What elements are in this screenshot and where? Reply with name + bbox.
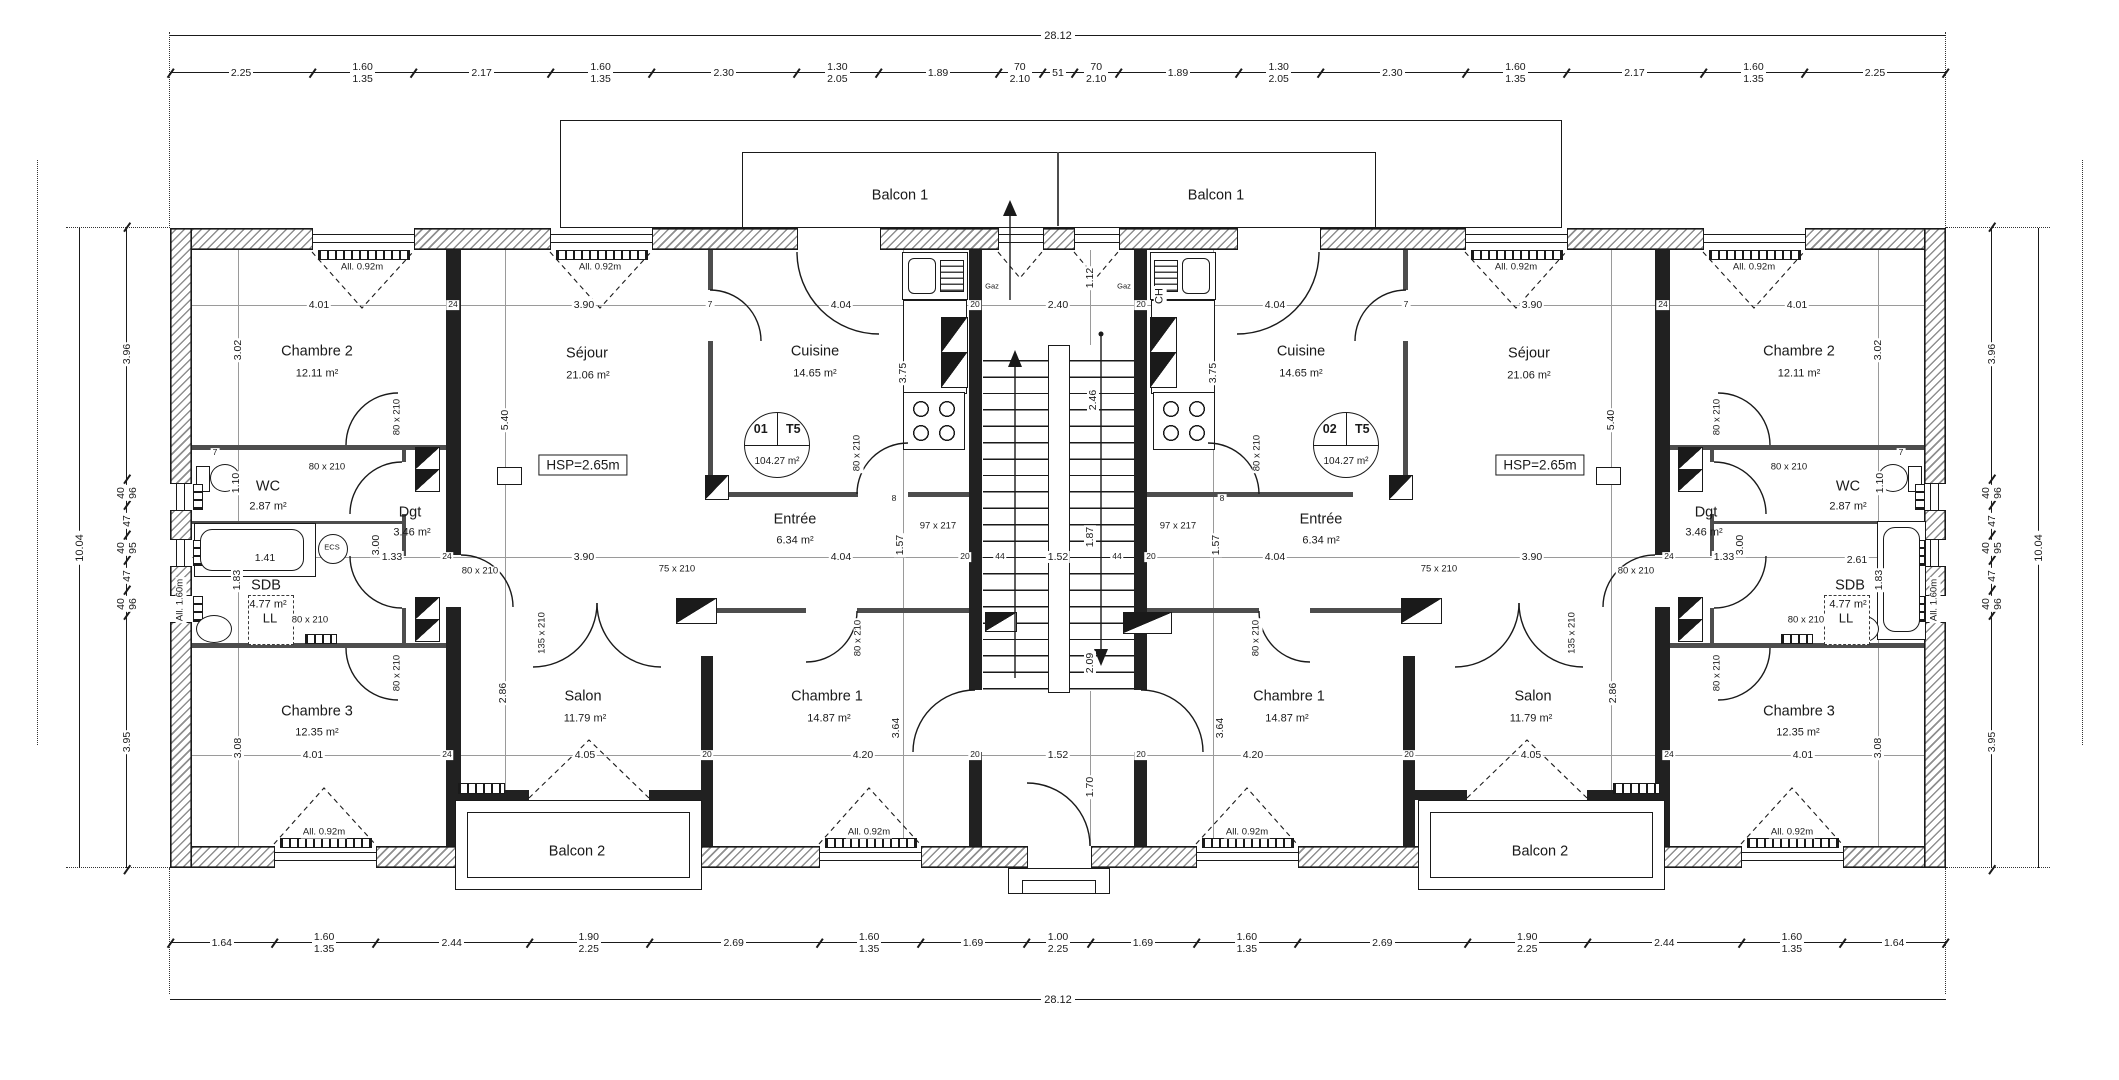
door-size: 80 x 210 bbox=[854, 618, 865, 658]
room-area: 12.35 m² bbox=[1776, 727, 1819, 740]
dim-segment: 1.002.25 bbox=[1026, 926, 1089, 960]
left-total-value: 10.04 bbox=[74, 531, 86, 565]
dim: 4.04 bbox=[1263, 299, 1287, 311]
dim: 3.75 bbox=[1207, 361, 1219, 385]
dim: 24 bbox=[1662, 552, 1675, 562]
sill-height-label: All. 0.92m bbox=[846, 828, 892, 839]
ceiling-height-right: HSP=2.65m bbox=[1495, 455, 1584, 476]
dim: 8 bbox=[1218, 494, 1227, 504]
dim: 3.64 bbox=[890, 716, 902, 740]
dim: 4.04 bbox=[829, 551, 853, 563]
room-sdb-left: SDB bbox=[251, 578, 281, 595]
balcony1-left-label: Balcon 1 bbox=[872, 188, 928, 205]
ceiling-height-left: HSP=2.65m bbox=[538, 455, 627, 476]
dim: 3.64 bbox=[1214, 716, 1226, 740]
door-size: 97 x 217 bbox=[1158, 522, 1198, 533]
sill-height-label: All. 1.60m bbox=[1930, 577, 1941, 623]
dim-segment: 1.69 bbox=[920, 926, 1027, 960]
room-cuisine-left: Cuisine bbox=[791, 344, 839, 361]
room-chambre1-left: Chambre 1 bbox=[791, 689, 863, 706]
dim-segment: 1.601.35 bbox=[1703, 56, 1804, 90]
dim: 7 bbox=[1402, 300, 1411, 310]
door-size: 80 x 210 bbox=[1253, 433, 1264, 473]
dim: 20 bbox=[1134, 750, 1147, 760]
dim: 1.70 bbox=[1084, 775, 1096, 799]
dim-segment: 1.69 bbox=[1090, 926, 1197, 960]
sill-height-label: All. 0.92m bbox=[577, 263, 623, 274]
dim: 1.57 bbox=[1210, 533, 1222, 557]
door-size: 80 x 210 bbox=[1769, 463, 1809, 474]
room-chambre2-right: Chambre 2 bbox=[1763, 344, 1835, 361]
room-area: 11.79 m² bbox=[1510, 713, 1553, 726]
door-size: 80 x 210 bbox=[853, 433, 864, 473]
dim: 1.10 bbox=[1874, 471, 1886, 495]
dim-segment: 51 bbox=[1042, 56, 1074, 90]
dim-segment: 2.17 bbox=[1566, 56, 1703, 90]
right-total-dimension: 10.04 bbox=[2031, 228, 2047, 868]
dim: 5.40 bbox=[499, 408, 511, 432]
room-area: 12.11 m² bbox=[1778, 368, 1821, 381]
room-area: 14.65 m² bbox=[1279, 368, 1322, 381]
door-size: 97 x 217 bbox=[918, 522, 958, 533]
dim: 4.05 bbox=[1519, 749, 1543, 761]
dim-segment: 47 bbox=[112, 506, 142, 536]
dim: 2.40 bbox=[1046, 299, 1070, 311]
dim: 4.05 bbox=[573, 749, 597, 761]
room-entree-right: Entrée bbox=[1300, 512, 1343, 529]
dim: 5.40 bbox=[1605, 408, 1617, 432]
washing-machine-label-left: LL bbox=[263, 612, 277, 627]
dim: 24 bbox=[446, 300, 459, 310]
dim-segment: 1.601.35 bbox=[1741, 926, 1842, 960]
dim-segment: 2.17 bbox=[413, 56, 550, 90]
room-chambre3-left: Chambre 3 bbox=[281, 704, 353, 721]
door-size: 80 x 210 bbox=[1713, 397, 1724, 437]
dim: 1.52 bbox=[1046, 551, 1070, 563]
dim-segment: 1.302.05 bbox=[796, 56, 878, 90]
room-salon-right: Salon bbox=[1514, 689, 1551, 706]
dim: 1.41 bbox=[253, 552, 277, 564]
room-area: 14.65 m² bbox=[793, 368, 836, 381]
dim-segment: 1.601.35 bbox=[1465, 56, 1566, 90]
balcony2-right-label: Balcon 2 bbox=[1512, 844, 1568, 861]
dim: 20 bbox=[1144, 552, 1157, 562]
dim-segment: 1.601.35 bbox=[819, 926, 920, 960]
dim-segment: 2.44 bbox=[1587, 926, 1741, 960]
room-area: 3.46 m² bbox=[1685, 527, 1722, 540]
dim-segment: 2.25 bbox=[1804, 56, 1946, 90]
sill-height-label: All. 0.92m bbox=[1493, 263, 1539, 274]
dim: 4.01 bbox=[307, 299, 331, 311]
dim-segment: 1.601.35 bbox=[274, 926, 375, 960]
dim: 7 bbox=[211, 448, 220, 458]
door-size: 80 x 210 bbox=[393, 653, 404, 693]
dim-segment: 1.902.25 bbox=[529, 926, 649, 960]
dim: 3.08 bbox=[1872, 736, 1884, 760]
right-dimension-chain: 3.96 4096 47 4095 47 4096 3.95 bbox=[1977, 228, 2007, 868]
bottom-dimension-chain: 1.64 1.601.35 2.44 1.902.25 2.69 1.601.3… bbox=[170, 926, 1946, 960]
dim: 1.83 bbox=[231, 568, 243, 592]
top-total-dimension: 28.12 bbox=[170, 28, 1946, 44]
dim: 20 bbox=[958, 552, 971, 562]
dim: 7 bbox=[706, 300, 715, 310]
room-dgt-right: Dgt bbox=[1695, 505, 1718, 522]
unit-badge-02: 02T5 104.27 m² bbox=[1313, 412, 1379, 478]
balcony2-left-label: Balcon 2 bbox=[549, 844, 605, 861]
room-area: 12.35 m² bbox=[295, 727, 338, 740]
dim-segment: 1.64 bbox=[170, 926, 274, 960]
room-wc-left: WC bbox=[256, 479, 280, 496]
dim: 3.00 bbox=[1734, 533, 1746, 557]
room-area: 14.87 m² bbox=[1265, 713, 1308, 726]
dim: 1.83 bbox=[1873, 568, 1885, 592]
room-area: 6.34 m² bbox=[1302, 535, 1339, 548]
gas-label: Gaz bbox=[1115, 283, 1133, 292]
sill-height-label: All. 0.92m bbox=[301, 828, 347, 839]
dim-segment: 702.10 bbox=[998, 56, 1042, 90]
dim: 1.33 bbox=[1712, 551, 1736, 563]
right-total-value: 10.04 bbox=[2033, 531, 2045, 565]
room-wc-right: WC bbox=[1836, 479, 1860, 496]
dim: 1.12 bbox=[1084, 266, 1096, 290]
door-size: 80 x 210 bbox=[1252, 618, 1263, 658]
dim-segment: 1.64 bbox=[1842, 926, 1946, 960]
room-area: 4.77 m² bbox=[1829, 599, 1866, 612]
top-dimension-chain: 2.25 1.601.35 2.17 1.601.35 2.30 1.302.0… bbox=[170, 56, 1946, 90]
floor-plan: 28.12 2.25 1.601.35 2.17 1.601.35 2.30 1… bbox=[0, 0, 2119, 1080]
door-size: 80 x 210 bbox=[393, 397, 404, 437]
room-sejour-right: Séjour bbox=[1508, 346, 1550, 363]
dim-segment: 702.10 bbox=[1074, 56, 1118, 90]
room-salon-left: Salon bbox=[564, 689, 601, 706]
door-size: 135 x 210 bbox=[1568, 610, 1579, 656]
dim: 24 bbox=[1662, 750, 1675, 760]
dim-segment: 2.44 bbox=[375, 926, 529, 960]
water-heater-label: ECS bbox=[324, 544, 339, 553]
washing-machine-label-right: LL bbox=[1839, 612, 1853, 627]
dim-segment: 3.96 bbox=[1977, 228, 2007, 480]
dim: 44 bbox=[1110, 552, 1123, 562]
room-area: 21.06 m² bbox=[1507, 370, 1550, 383]
unit-badge-01: 01T5 104.27 m² bbox=[744, 412, 810, 478]
room-sejour-left: Séjour bbox=[566, 346, 608, 363]
dim: 20 bbox=[968, 300, 981, 310]
dim: 4.04 bbox=[829, 299, 853, 311]
dim: 2.86 bbox=[1607, 681, 1619, 705]
dim: 20 bbox=[1402, 750, 1415, 760]
dim: 2.61 bbox=[1845, 554, 1869, 566]
dim: 3.90 bbox=[572, 299, 596, 311]
balcony1-right-label: Balcon 1 bbox=[1188, 188, 1244, 205]
dim: 2.46 bbox=[1087, 388, 1099, 412]
dim: 4.01 bbox=[301, 749, 325, 761]
door-size: 80 x 210 bbox=[1786, 616, 1826, 627]
dim: 8 bbox=[890, 494, 899, 504]
dim-segment: 2.69 bbox=[649, 926, 819, 960]
dim: 4.04 bbox=[1263, 551, 1287, 563]
dim-segment: 1.601.35 bbox=[550, 56, 651, 90]
dim: 2.86 bbox=[497, 681, 509, 705]
dim: 24 bbox=[1656, 300, 1669, 310]
dim-segment: 3.96 bbox=[112, 228, 142, 480]
dim: 24 bbox=[440, 552, 453, 562]
door-size: 75 x 210 bbox=[1419, 565, 1459, 576]
dim-segment: 2.30 bbox=[651, 56, 796, 90]
dim: 20 bbox=[968, 750, 981, 760]
room-chambre1-right: Chambre 1 bbox=[1253, 689, 1325, 706]
door-size: 80 x 210 bbox=[1713, 653, 1724, 693]
dim: 4.01 bbox=[1791, 749, 1815, 761]
dim: 1.33 bbox=[380, 551, 404, 563]
dim: 2.09 bbox=[1084, 651, 1096, 675]
dim-segment: 47 bbox=[1977, 506, 2007, 536]
dim-segment: 1.902.25 bbox=[1467, 926, 1587, 960]
dim-segment: 3.95 bbox=[1977, 616, 2007, 868]
dim-segment: 1.302.05 bbox=[1238, 56, 1320, 90]
room-cuisine-right: Cuisine bbox=[1277, 344, 1325, 361]
dim-segment: 2.69 bbox=[1297, 926, 1467, 960]
dim: 1.52 bbox=[1046, 749, 1070, 761]
dim: 3.90 bbox=[1520, 299, 1544, 311]
room-dgt-left: Dgt bbox=[399, 505, 422, 522]
room-sdb-right: SDB bbox=[1835, 578, 1865, 595]
dim: 1.57 bbox=[894, 533, 906, 557]
door-size: 135 x 210 bbox=[538, 610, 549, 656]
dim: 3.90 bbox=[572, 551, 596, 563]
dim: 3.00 bbox=[370, 533, 382, 557]
dim: 4.20 bbox=[1241, 749, 1265, 761]
dim: 20 bbox=[1134, 300, 1147, 310]
door-size: 75 x 210 bbox=[657, 565, 697, 576]
dim: 3.08 bbox=[232, 736, 244, 760]
room-area: 6.34 m² bbox=[776, 535, 813, 548]
dim: 3.90 bbox=[1520, 551, 1544, 563]
dim-segment: 2.30 bbox=[1320, 56, 1465, 90]
door-size: 80 x 210 bbox=[1616, 567, 1656, 578]
dim: 4.20 bbox=[851, 749, 875, 761]
room-entree-left: Entrée bbox=[774, 512, 817, 529]
dim: 44 bbox=[993, 552, 1006, 562]
bottom-total-value: 28.12 bbox=[1041, 994, 1075, 1006]
room-chambre3-right: Chambre 3 bbox=[1763, 704, 1835, 721]
room-area: 14.87 m² bbox=[807, 713, 850, 726]
room-area: 21.06 m² bbox=[566, 370, 609, 383]
door-size: 80 x 210 bbox=[460, 567, 500, 578]
dim: 7 bbox=[1897, 448, 1906, 458]
dim-segment: 1.601.35 bbox=[312, 56, 413, 90]
dim-segment: 1.89 bbox=[878, 56, 997, 90]
dim-segment: 2.25 bbox=[170, 56, 312, 90]
dim: 4.01 bbox=[1785, 299, 1809, 311]
sill-height-label: All. 1.60m bbox=[176, 577, 187, 623]
sill-height-label: All. 0.92m bbox=[1731, 263, 1777, 274]
sill-height-label: All. 0.92m bbox=[339, 263, 385, 274]
dim: 24 bbox=[440, 750, 453, 760]
dim: 3.02 bbox=[232, 338, 244, 362]
plan-linework bbox=[0, 0, 2119, 1080]
boiler-label: CH bbox=[1154, 286, 1167, 306]
room-area: 2.87 m² bbox=[249, 501, 286, 514]
left-dimension-chain: 3.96 4096 47 4095 47 4096 3.95 bbox=[112, 228, 142, 868]
dim: 20 bbox=[700, 750, 713, 760]
room-area: 12.11 m² bbox=[296, 368, 339, 381]
left-total-dimension: 10.04 bbox=[72, 228, 88, 868]
door-size: 80 x 210 bbox=[307, 463, 347, 474]
door-size: 80 x 210 bbox=[290, 616, 330, 627]
top-total-value: 28.12 bbox=[1041, 30, 1075, 42]
bottom-total-dimension: 28.12 bbox=[170, 992, 1946, 1008]
dim-segment: 3.95 bbox=[112, 616, 142, 868]
dim: 1.10 bbox=[230, 471, 242, 495]
gas-label: Gaz bbox=[983, 283, 1001, 292]
room-area: 2.87 m² bbox=[1829, 501, 1866, 514]
dim: 1.87 bbox=[1084, 525, 1096, 549]
sill-height-label: All. 0.92m bbox=[1769, 828, 1815, 839]
dim-segment: 1.89 bbox=[1118, 56, 1237, 90]
room-area: 4.77 m² bbox=[249, 599, 286, 612]
room-area: 3.46 m² bbox=[393, 527, 430, 540]
dim: 3.02 bbox=[1872, 338, 1884, 362]
dim: 3.75 bbox=[897, 361, 909, 385]
dim-segment: 1.601.35 bbox=[1196, 926, 1297, 960]
sill-height-label: All. 0.92m bbox=[1224, 828, 1270, 839]
room-chambre2-left: Chambre 2 bbox=[281, 344, 353, 361]
room-area: 11.79 m² bbox=[564, 713, 607, 726]
